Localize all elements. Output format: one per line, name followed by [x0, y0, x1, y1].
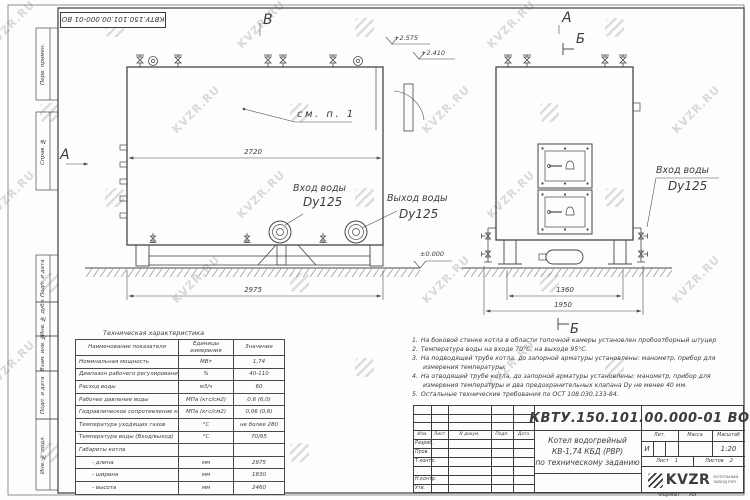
- note-text: Остальные технические требования по ОСТ …: [421, 391, 619, 398]
- margin-stamp-inv-dubl: Инв. № дубл.: [37, 302, 51, 336]
- tech-table: Наименование показателя Единицы измерени…: [75, 339, 285, 495]
- col-ndoc: N докум.: [448, 430, 491, 439]
- tech-header-units: Единицы измерения: [179, 340, 234, 356]
- note-item: 2.Температура воды на входе 70°С, на вых…: [412, 346, 745, 355]
- tech-units: %: [179, 368, 234, 381]
- valve-icons-bottom-side: [150, 233, 327, 243]
- table-row: Расход водым3/ч60: [76, 381, 285, 394]
- doc-number-stamp-rotated: КВТУ.150.101.00.000-01 ВО: [60, 12, 166, 28]
- tech-units: °С: [179, 431, 234, 444]
- note-text: На подводящей трубе котла, до запорной а…: [421, 355, 715, 371]
- title-block-grid-line: [414, 466, 534, 467]
- scale-label: Масштаб: [712, 430, 745, 441]
- tech-value: 1,74: [234, 356, 285, 369]
- table-row: - длинамм2975: [76, 456, 285, 469]
- title-block: КВТУ.150.101.00.000-01 ВО Изм. Лист N до…: [413, 405, 744, 493]
- elev-2575: +2.575: [394, 34, 418, 42]
- title-block-grid-line: [414, 422, 534, 423]
- tech-units: мм: [179, 456, 234, 469]
- lit-value: И: [641, 441, 653, 456]
- inlet-end-dn: Dy125: [668, 179, 707, 193]
- tech-value: 0,6 (6,0): [234, 393, 285, 406]
- inlet-end-label: Вход воды: [656, 165, 709, 176]
- outlet-side-dn: Dy125: [399, 207, 438, 221]
- lower-door: [538, 190, 592, 234]
- note-text: На боковой стенке котла в области топочн…: [421, 337, 716, 344]
- note-number: 4.: [412, 373, 418, 380]
- margin-stamp-inv-podl: Инв. № подл.: [37, 419, 51, 490]
- table-row: Температура уходящих газов°Сне более 280: [76, 418, 285, 431]
- product-title-line1: Котел водогрейный: [548, 435, 627, 446]
- section-label-b-bottom: Б: [570, 322, 579, 337]
- tech-value: 2975: [234, 456, 285, 469]
- dim-1360: 1360: [542, 286, 588, 294]
- margin-stamp-podp-data-1: Подп. и дата: [37, 255, 51, 302]
- tech-name: Температура воды (Вход/выход): [76, 431, 179, 444]
- inlet-side-label: Вход воды: [293, 183, 346, 194]
- title-block-grid-line: [448, 406, 449, 492]
- leaders-and-marks: [66, 23, 719, 330]
- tech-units: МПа (кгс/см2): [179, 406, 234, 419]
- note-text: Температура воды на входе 70°С, на выход…: [421, 346, 588, 353]
- side-view: [120, 55, 424, 266]
- margin-stamp-sprav-n: Справ. №: [37, 112, 51, 190]
- row-nkontr: Н.контр.: [415, 475, 448, 484]
- kvzr-logo: KVZR КОТЕЛЬНЫЙ ЗАВОД РЭП: [641, 466, 745, 494]
- tech-name: Диапазон рабочего регулирования: [76, 368, 179, 381]
- note-number: 5.: [412, 391, 418, 398]
- tech-value: 1830: [234, 469, 285, 482]
- tech-table-title: Техническая характеристика: [103, 329, 204, 337]
- sheet-value: 1: [675, 458, 678, 464]
- col-podp: Подп.: [491, 430, 513, 439]
- section-label-b-top: Б: [576, 32, 585, 47]
- sheets-label: Листов: [705, 458, 724, 464]
- drawing-sheet: KVZR.RUKVZR.RUKVZR.RUKVZR.RUKVZR.RUKVZR.…: [0, 0, 750, 500]
- elev-0000: ±0.000: [420, 250, 444, 258]
- note-item: 4.На отводящей трубе котла, до запорной …: [412, 373, 745, 391]
- view-label-v: В: [263, 12, 273, 28]
- tech-value: [234, 444, 285, 457]
- kvzr-logo-text: KVZR: [666, 472, 711, 488]
- format-label: Формат: [658, 492, 680, 498]
- tech-name: - высота: [76, 481, 179, 494]
- valve-icons-side-end: [482, 228, 648, 262]
- tech-units: мм: [179, 481, 234, 494]
- margin-stamp-perv-primen: Перв. примен.: [37, 28, 51, 100]
- title-block-product-title: Котел водогрейный КВ-1,74 КБД (РВР) по т…: [534, 430, 641, 473]
- row-prov: Пров.: [415, 448, 448, 457]
- note-item: 3.На подводящей трубе котла, до запорной…: [412, 355, 745, 373]
- kvzr-logo-sub2: ЗАВОД РЭП: [713, 480, 738, 485]
- table-row: Рабочее давление водыМПа (кгс/см2)0,6 (6…: [76, 393, 285, 406]
- row-tkontr: Т.контр.: [415, 457, 448, 466]
- title-block-grid-line: [653, 441, 654, 456]
- valve-icons-top-end: [504, 55, 627, 67]
- mass-label: Масса: [678, 430, 712, 441]
- view-label-a-left: А: [60, 147, 70, 163]
- table-row: Диапазон рабочего регулирования%40-110: [76, 368, 285, 381]
- tech-value: 2460: [234, 481, 285, 494]
- format-value: А3: [689, 492, 696, 498]
- table-row: - ширинамм1830: [76, 469, 285, 482]
- upper-door: [538, 144, 592, 188]
- col-izm: Изм.: [414, 430, 431, 439]
- scale-value: 1:20: [712, 441, 745, 456]
- tech-units: °С: [179, 418, 234, 431]
- kvzr-logo-icon: [648, 473, 663, 488]
- tech-name: Гидравлическое сопротивление котла: [76, 406, 179, 419]
- tech-units: м3/ч: [179, 381, 234, 394]
- table-row: Гидравлическое сопротивление котлаМПа (к…: [76, 406, 285, 419]
- tech-value: не более 280: [234, 418, 285, 431]
- title-block-doc-number: КВТУ.150.101.00.000-01 ВО: [534, 406, 745, 430]
- dim-1950: 1950: [540, 301, 586, 309]
- tech-units: мм: [179, 469, 234, 482]
- table-row: Габариты котла: [76, 444, 285, 457]
- row-utv: Утв.: [415, 484, 448, 493]
- col-data: Дата: [513, 430, 534, 439]
- dim-2720: 2720: [228, 148, 278, 156]
- tech-table-header: Наименование показателя Единицы измерени…: [76, 340, 285, 356]
- format-note: ФорматА3: [658, 492, 706, 498]
- tech-header-name: Наименование показателя: [76, 340, 179, 356]
- tech-name: - ширина: [76, 469, 179, 482]
- sheets-cell: Листов 2: [693, 456, 745, 466]
- tech-value: 70/95: [234, 431, 285, 444]
- product-title-line3: по техническому заданию: [535, 457, 639, 468]
- ground-hatch: [85, 268, 672, 277]
- note-item: 1.На боковой стенке котла в области топо…: [412, 337, 745, 346]
- tech-name: Температура уходящих газов: [76, 418, 179, 431]
- tech-units: [179, 444, 234, 457]
- sheet-label: Лист: [656, 458, 669, 464]
- table-row: - высотамм2460: [76, 481, 285, 494]
- tech-name: Габариты котла: [76, 444, 179, 457]
- title-block-grid-line: [414, 414, 534, 415]
- tech-value: 60: [234, 381, 285, 394]
- note-number: 2.: [412, 346, 418, 353]
- tech-name: Рабочее давление воды: [76, 393, 179, 406]
- table-row: Температура воды (Вход/выход)°С70/95: [76, 431, 285, 444]
- title-block-grid-line: [491, 406, 492, 492]
- note-number: 1.: [412, 337, 418, 344]
- technical-notes: 1.На боковой стенке котла в области топо…: [412, 337, 745, 400]
- row-razrab: Разраб.: [415, 439, 448, 448]
- inlet-side-dn: Dy125: [303, 195, 342, 209]
- title-block-grid-line: [513, 406, 514, 492]
- note-number: 3.: [412, 355, 418, 362]
- col-list: Лист: [431, 430, 448, 439]
- title-block-grid-line: [665, 441, 666, 456]
- dim-2975: 2975: [230, 286, 276, 294]
- lit-label: Лит.: [641, 430, 678, 441]
- callout-see-note-1: см. п. 1: [297, 109, 356, 120]
- end-view: [482, 55, 648, 264]
- product-title-line2: КВ-1,74 КБД (РВР): [552, 446, 623, 457]
- sheet-cell: Лист 1: [641, 456, 693, 466]
- view-label-a-right: А: [562, 10, 572, 26]
- tech-value: 0,06 (0,6): [234, 406, 285, 419]
- elev-2410: +2.410: [421, 49, 445, 57]
- margin-stamp-podp-data-2: Подп. и дата: [37, 371, 51, 419]
- sheets-value: 2: [730, 458, 733, 464]
- tech-name: Расход воды: [76, 381, 179, 394]
- table-row: Номинальная мощностьМВт1,74: [76, 356, 285, 369]
- tech-header-value: Значение: [234, 340, 285, 356]
- outlet-side-label: Выход воды: [387, 193, 448, 204]
- tech-units: МПа (кгс/см2): [179, 393, 234, 406]
- tech-units: МВт: [179, 356, 234, 369]
- tech-value: 40-110: [234, 368, 285, 381]
- tech-name: Номинальная мощность: [76, 356, 179, 369]
- note-item: 5.Остальные технические требования по ОС…: [412, 391, 745, 400]
- margin-stamp-vzam-inv: Взам. инв. №: [37, 336, 51, 371]
- valve-icons-top-side: [136, 55, 337, 67]
- note-text: На отводящей трубе котла, до запорной ар…: [421, 373, 711, 389]
- tech-name: - длина: [76, 456, 179, 469]
- title-block-grid-line: [534, 473, 641, 474]
